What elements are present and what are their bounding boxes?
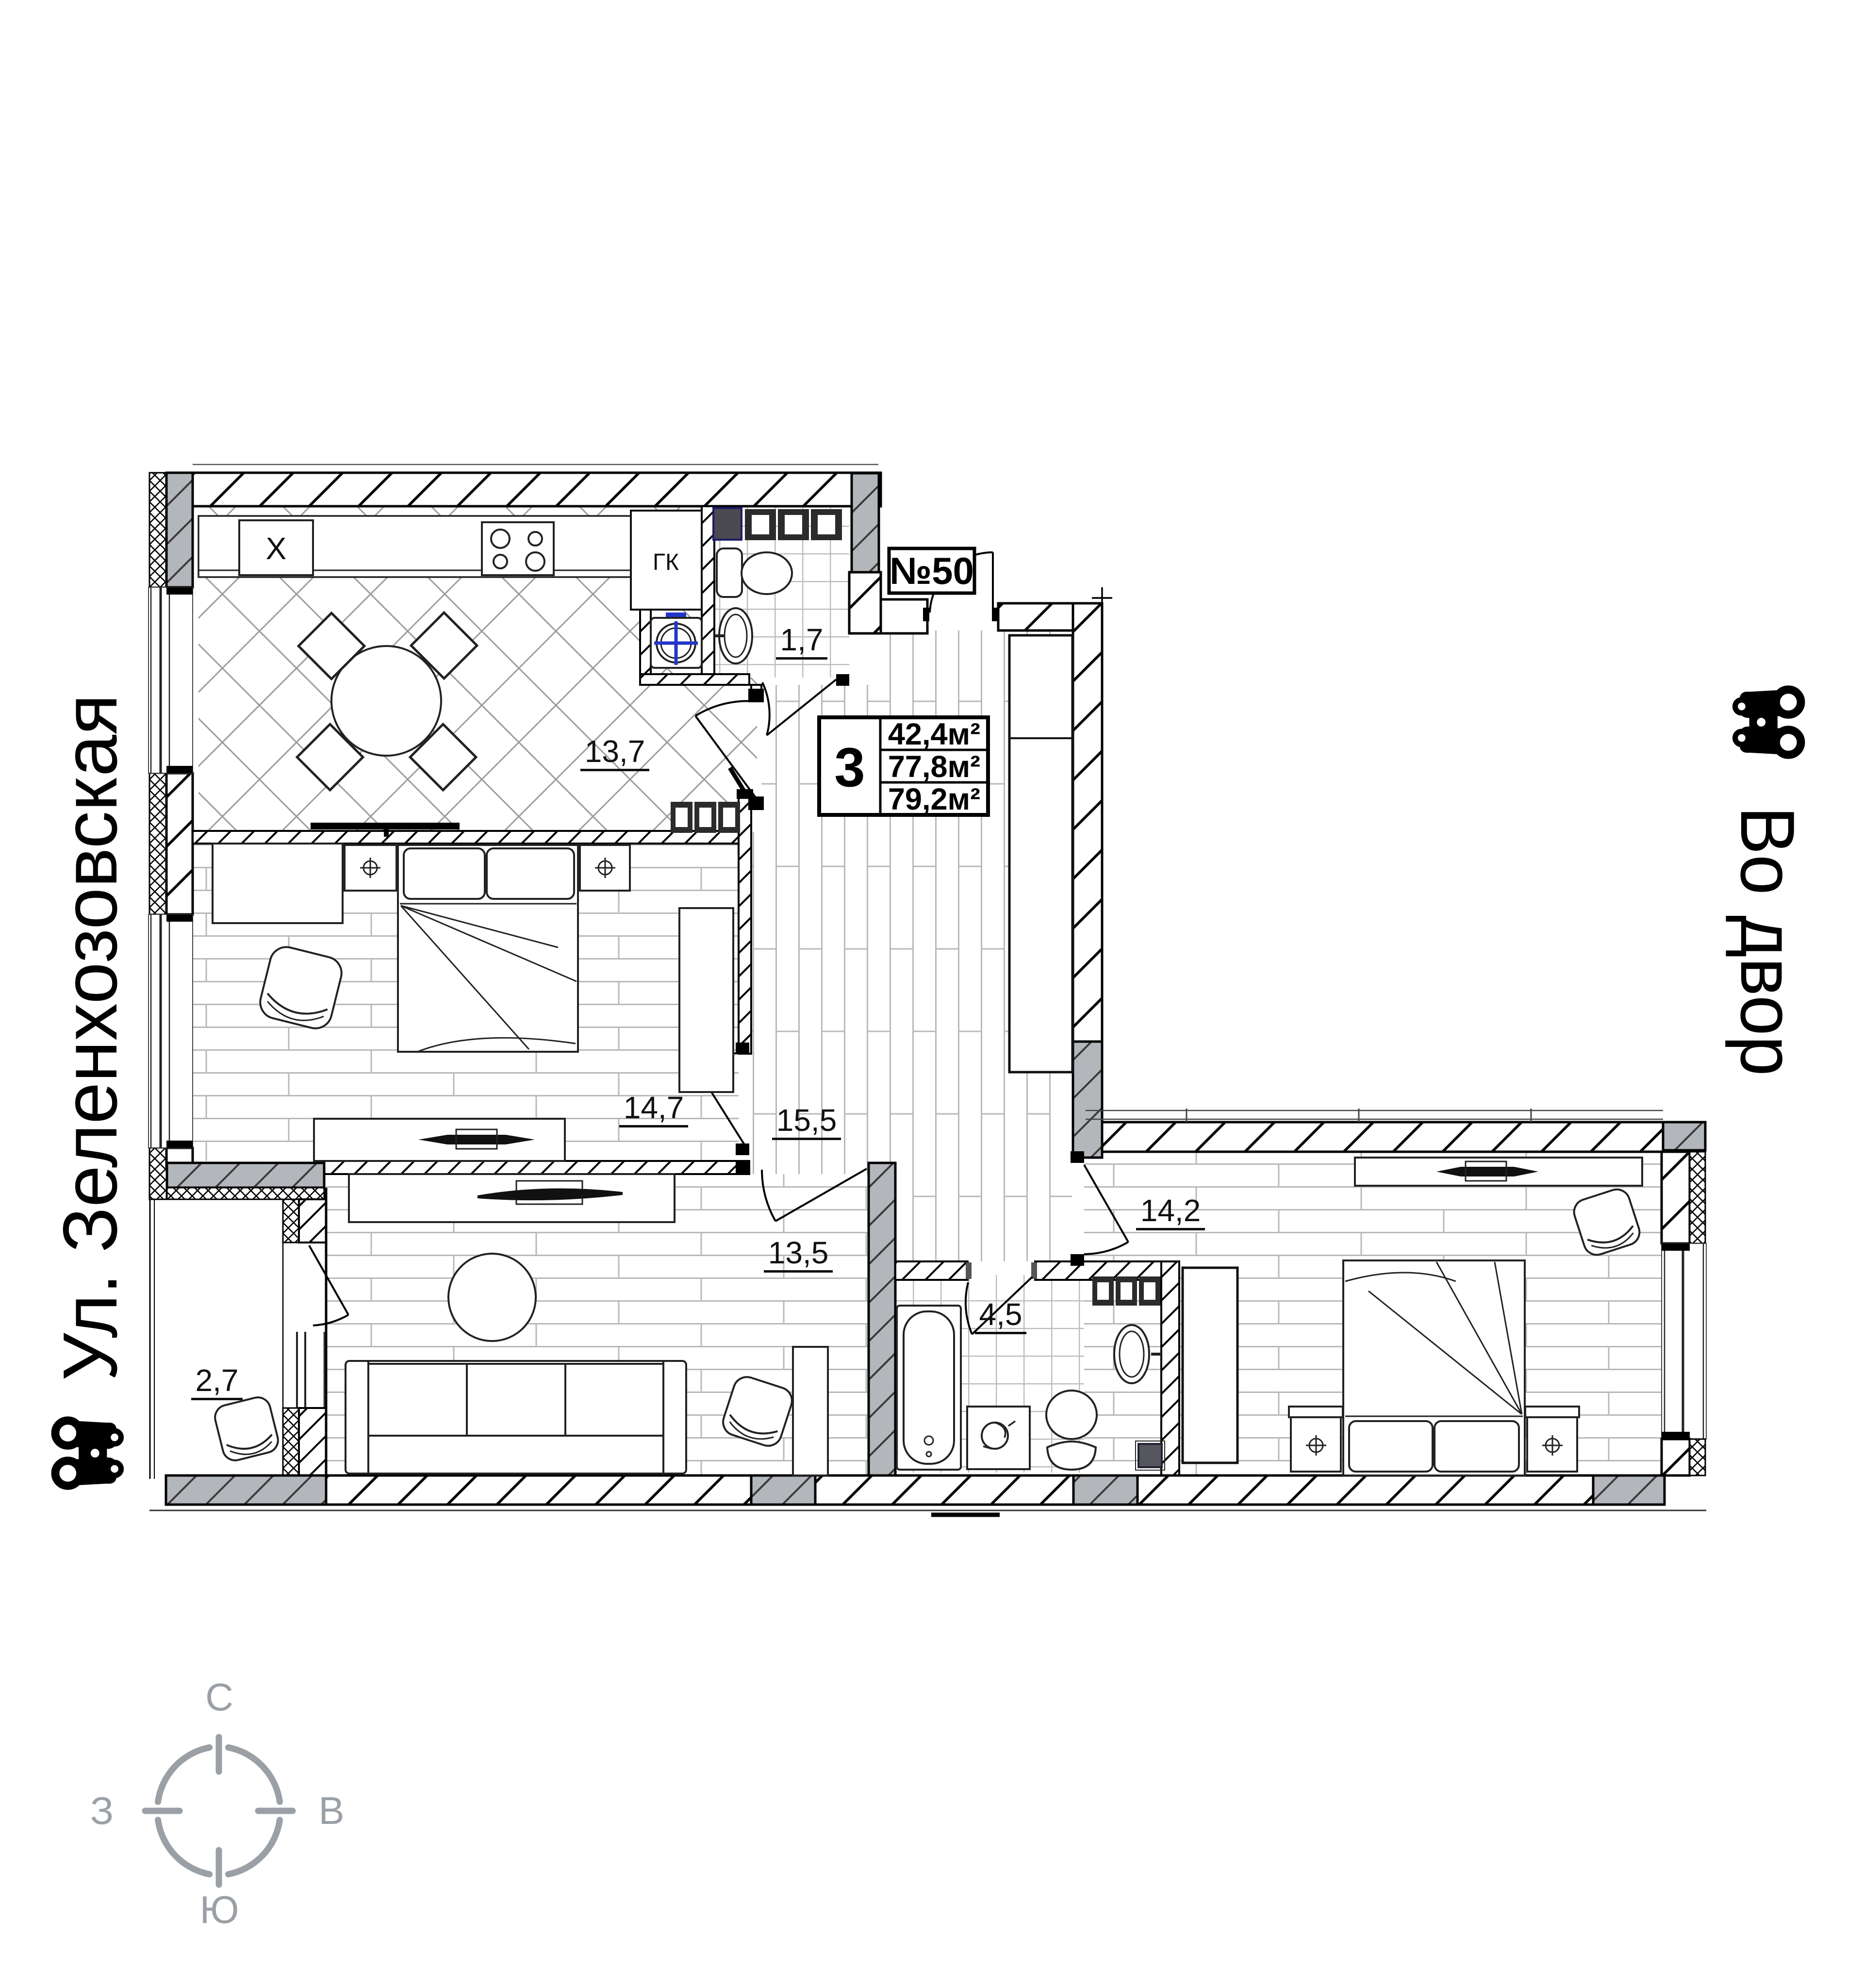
svg-text:42,4м²: 42,4м² — [888, 717, 980, 751]
svg-text:3: 3 — [834, 737, 865, 798]
svg-text:С: С — [205, 1675, 233, 1719]
svg-text:Ул. Зеленхозовская: Ул. Зеленхозовская — [48, 694, 133, 1381]
svg-text:2,7: 2,7 — [196, 1363, 239, 1398]
svg-text:№50: №50 — [890, 549, 974, 592]
svg-text:79,2м²: 79,2м² — [888, 782, 980, 816]
svg-text:1,7: 1,7 — [780, 622, 824, 657]
svg-text:14,2: 14,2 — [1140, 1193, 1201, 1228]
svg-text:ГК: ГК — [653, 549, 679, 575]
svg-text:13,7: 13,7 — [585, 734, 645, 769]
svg-text:В: В — [318, 1789, 344, 1832]
svg-text:77,8м²: 77,8м² — [888, 750, 980, 784]
svg-text:14,7: 14,7 — [624, 1090, 684, 1125]
svg-text:4,5: 4,5 — [979, 1297, 1022, 1332]
svg-text:Ю: Ю — [200, 1888, 239, 1931]
svg-text:Во двор: Во двор — [1725, 806, 1810, 1076]
svg-text:15,5: 15,5 — [776, 1103, 837, 1138]
svg-text:X: X — [266, 531, 287, 566]
svg-text:З: З — [90, 1789, 114, 1832]
svg-text:13,5: 13,5 — [768, 1235, 829, 1270]
